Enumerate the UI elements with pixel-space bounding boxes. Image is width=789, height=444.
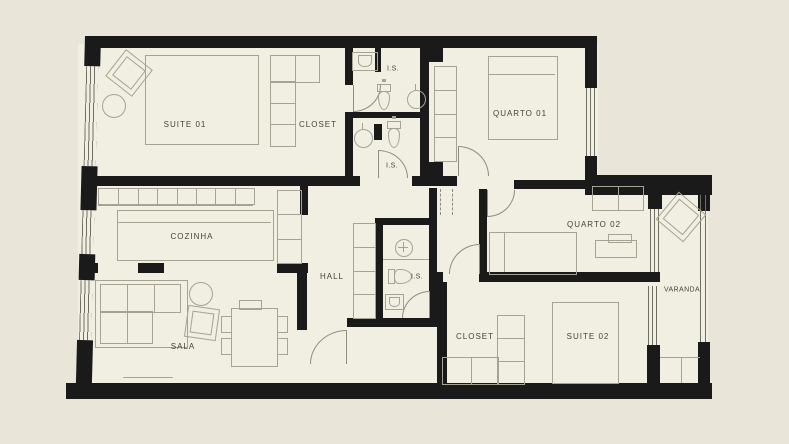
room-label-is-2: I.S.: [386, 163, 398, 170]
wall: [85, 36, 597, 48]
tap: [415, 84, 416, 90]
room-label-cozinha: COZINHA: [171, 233, 214, 241]
rug-line: [123, 377, 173, 378]
tap: [362, 123, 363, 129]
counter-edge: [98, 205, 253, 206]
room-label-closet-02: CLOSET: [456, 333, 494, 341]
room-label-sala: SALA: [171, 343, 195, 351]
room-label-suite-02: SUITE 02: [567, 333, 610, 341]
threshold-dashed-line: [452, 189, 453, 215]
round-sink: [354, 129, 373, 148]
wall: [297, 263, 307, 330]
desk-object: [608, 234, 632, 243]
wall: [347, 318, 443, 327]
wall: [429, 188, 437, 320]
room-label-varanda: VARANDA: [664, 287, 700, 294]
window: [84, 66, 99, 166]
hall-shelving: [353, 223, 376, 319]
kitchen-cabinets: [277, 190, 302, 264]
wall: [138, 263, 164, 273]
wall: [277, 263, 308, 273]
wall: [514, 180, 597, 189]
dining-chair: [277, 316, 288, 333]
wall: [698, 342, 710, 383]
armchair: [184, 305, 220, 341]
dining-chair: [221, 316, 232, 333]
coffee-table: [189, 282, 213, 306]
wall: [82, 176, 360, 186]
closet-shelving: [442, 357, 499, 385]
round-sink: [407, 90, 426, 109]
shower-divider: [383, 259, 429, 260]
toilet: [387, 121, 401, 148]
pillow-line: [504, 233, 505, 272]
wall: [429, 162, 443, 176]
side-table: [102, 94, 126, 118]
dining-table: [231, 308, 278, 367]
wall: [345, 112, 353, 176]
wall: [76, 340, 93, 384]
dining-chair: [239, 300, 262, 310]
wall: [66, 383, 712, 399]
wall: [82, 263, 98, 273]
closet-shelving: [270, 81, 296, 147]
wardrobe-shelving: [434, 66, 457, 162]
valve: [392, 116, 396, 119]
bed-quarto-01: [488, 56, 558, 140]
wall: [479, 189, 487, 272]
floor-plan: SUITE 01 CLOSET I.S. I.S. QUARTO 01 COZI…: [0, 0, 789, 444]
shower-head: [395, 239, 413, 257]
wall: [375, 218, 383, 320]
room-label-is-3: I.S.: [411, 274, 423, 281]
dining-chair: [277, 338, 288, 355]
bathroom-sink-basin: [358, 55, 372, 67]
window: [81, 210, 94, 254]
wall: [429, 48, 443, 62]
valve: [382, 79, 386, 82]
kitchen-counter: [98, 188, 255, 205]
floor-divider: [660, 357, 700, 358]
island-edge: [118, 222, 271, 223]
dining-chair: [221, 338, 232, 355]
shower-line: [403, 242, 404, 252]
threshold-dashed-line: [440, 189, 441, 215]
bed-suite-02: [552, 302, 619, 384]
closet-shelving: [270, 55, 320, 83]
bathroom-sink-basin: [389, 297, 400, 307]
room-label-hall: HALL: [320, 273, 344, 281]
wall: [647, 345, 660, 383]
room-label-suite-01: SUITE 01: [164, 121, 207, 129]
wall: [84, 36, 101, 66]
wall: [437, 272, 443, 282]
window: [648, 286, 659, 345]
bed-quarto-02: [489, 232, 577, 275]
window: [586, 88, 596, 156]
window: [79, 280, 93, 340]
sofa-chaise: [100, 311, 153, 344]
wall: [80, 166, 97, 210]
closet-shelving: [497, 315, 525, 385]
toilet: [388, 269, 412, 284]
wardrobe: [592, 186, 644, 211]
wall: [412, 176, 457, 186]
pillow-line: [489, 74, 555, 75]
room-label-quarto-02: QUARTO 02: [567, 221, 621, 229]
wall: [648, 195, 662, 209]
room-label-quarto-01: QUARTO 01: [493, 110, 547, 118]
room-label-is-1: I.S.: [387, 66, 399, 73]
floor-divider: [681, 357, 682, 383]
wall: [585, 36, 597, 88]
wall: [353, 112, 425, 118]
wall: [420, 48, 429, 176]
toilet: [377, 84, 391, 110]
sofa-cushions: [100, 284, 181, 313]
bed-suite-01: [145, 55, 259, 145]
wall: [374, 124, 382, 140]
room-label-closet-01: CLOSET: [299, 121, 337, 129]
